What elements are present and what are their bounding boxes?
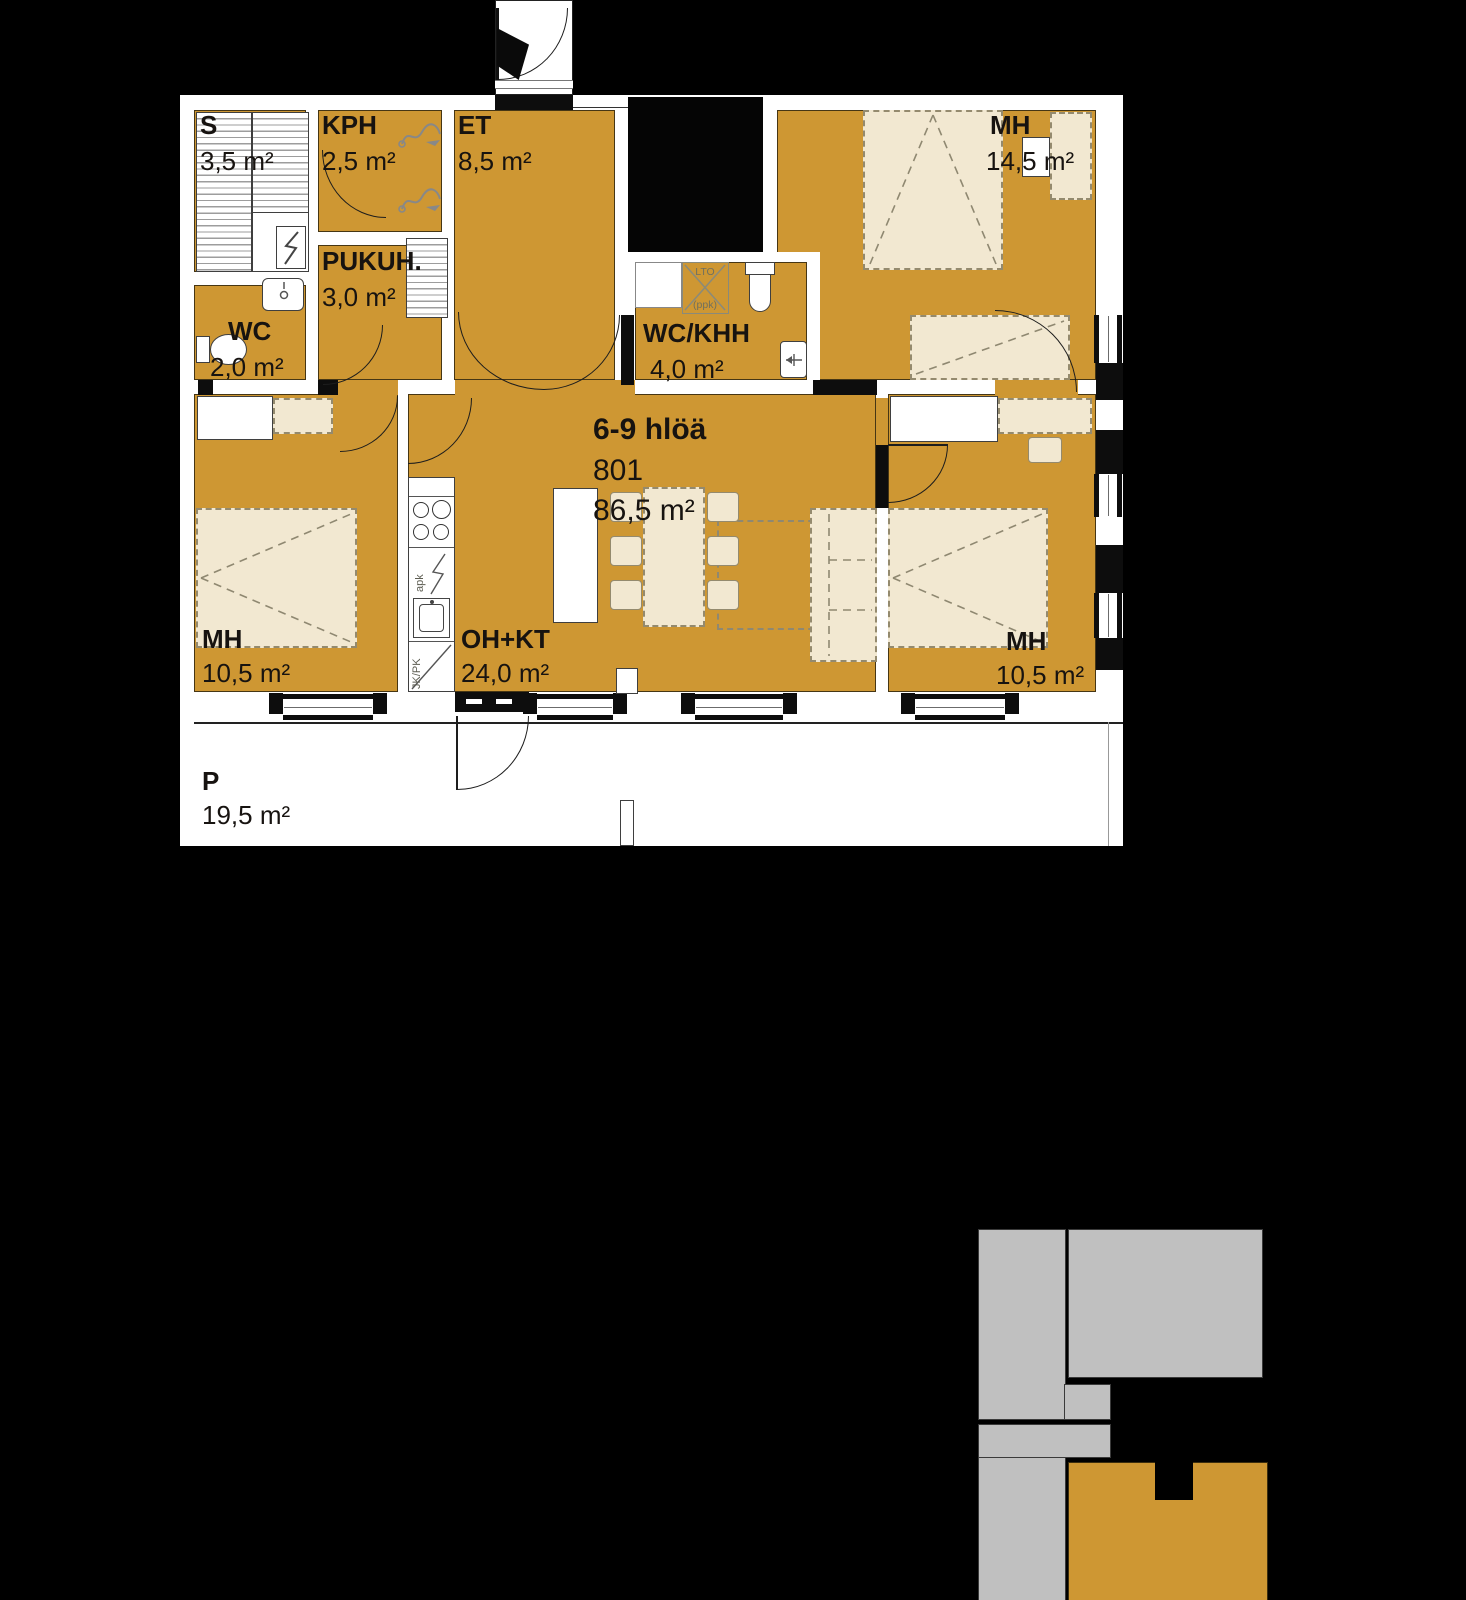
pillar-living	[616, 668, 638, 694]
wall-segment-5	[876, 445, 888, 508]
wall-segment-4	[813, 380, 877, 395]
label-bedroom-1-area: 14,5 m²	[986, 148, 1074, 174]
door-leaf-terrace	[456, 716, 458, 790]
label-bathroom-name: KPH	[322, 112, 377, 138]
label-living-kitchen-area: 24,0 m²	[461, 660, 549, 686]
wardrobe-bedroom-3	[890, 396, 998, 442]
chair-bedroom-3	[1028, 437, 1062, 463]
wall-segment-9	[1096, 638, 1123, 670]
stove-burner-4	[433, 524, 449, 540]
entrance-threshold	[495, 80, 573, 89]
label-living-kitchen-name: OH+KT	[461, 626, 550, 652]
kitchen-sink	[413, 598, 450, 638]
minimap-wing-1	[978, 1229, 1066, 1420]
minimap-wing-4	[978, 1457, 1066, 1600]
dining-chair-3	[610, 580, 642, 610]
label-wc-name: WC	[228, 318, 271, 344]
window-4-jamb-left	[901, 693, 915, 714]
shower-icon-1	[396, 120, 444, 152]
wall-segment-7	[1096, 430, 1123, 474]
window-2-jamb-right	[613, 693, 627, 714]
terrace-door-dash-1	[466, 699, 482, 704]
label-wc-utility-name: WC/KHH	[643, 320, 750, 346]
wall-segment-3	[621, 315, 634, 385]
floor-plan-canvas: LTO (ppk) apk JK/PK	[0, 0, 1466, 1600]
dining-chair-4	[707, 492, 739, 522]
terrace-post	[620, 800, 634, 846]
window-3-jamb-left	[681, 693, 695, 714]
dishwasher-label: apk	[415, 554, 426, 592]
opening-bedroom-3	[876, 398, 888, 445]
shower-icon-2	[396, 185, 444, 217]
label-entry-area: 8,5 m²	[458, 148, 532, 174]
terrace-door-dash-2	[496, 699, 512, 704]
bed-bedroom-1	[863, 110, 1003, 270]
wall-shaft-bottom	[615, 252, 820, 262]
kitchen-island	[553, 488, 598, 623]
label-bedroom-1-name: MH	[990, 112, 1030, 138]
heater-zigzag-icon	[277, 227, 307, 270]
label-unit-number: 801	[593, 456, 643, 486]
terrace	[194, 722, 1123, 846]
label-total-area: 86,5 m²	[593, 496, 695, 526]
wall-segment-1	[198, 380, 213, 395]
sauna-heater	[276, 226, 306, 269]
kitchen-sink-basin	[419, 604, 444, 632]
wall-bedroom-1-left	[807, 252, 820, 380]
fridge-freezer-label: JK/PK	[412, 645, 423, 689]
label-sauna-area: 3,5 m²	[200, 148, 274, 174]
kitchen-counter: apk JK/PK	[408, 477, 455, 692]
minimap-wing-2	[1068, 1229, 1263, 1378]
window-1	[283, 694, 373, 720]
window-4	[915, 694, 1005, 720]
entrance-opening	[495, 95, 573, 110]
dining-chair-2	[610, 536, 642, 566]
lto-label-2: (ppk)	[683, 299, 727, 311]
label-occupancy: 6-9 hlöä	[593, 415, 706, 445]
desk-bedroom-2	[273, 398, 333, 434]
label-bathroom-area: 2,5 m²	[322, 148, 396, 174]
label-bedroom-2-name: MH	[202, 626, 242, 652]
window-2	[537, 694, 613, 720]
utility-toilet-bowl	[749, 274, 771, 312]
stove-burner-1	[413, 502, 429, 518]
label-bedroom-3-area: 10,5 m²	[996, 662, 1084, 688]
window-1-jamb-right	[373, 693, 387, 714]
label-terrace-area: 19,5 m²	[202, 802, 290, 828]
label-terrace-name: P	[202, 768, 219, 794]
label-bedroom-2-area: 10,5 m²	[202, 660, 290, 686]
sofa	[810, 508, 877, 662]
dishwasher-mark-icon	[427, 552, 451, 596]
label-dressing-name: PUKUH.	[322, 248, 422, 274]
label-dressing-area: 3,0 m²	[322, 284, 396, 310]
minimap-wing-3	[978, 1424, 1111, 1458]
kitchen-sink-faucet	[430, 600, 434, 604]
dining-chair-5	[707, 536, 739, 566]
label-bedroom-3-name: MH	[1006, 628, 1046, 654]
stove-burner-3	[413, 524, 429, 540]
window-3	[695, 694, 783, 720]
label-entry-name: ET	[458, 112, 491, 138]
wall-segment-6	[1096, 382, 1123, 400]
minimap-wing-1-foot	[1064, 1384, 1111, 1420]
wall-segment-8	[1096, 545, 1123, 593]
window-3-jamb-right	[783, 693, 797, 714]
wardrobe-bedroom-2	[197, 396, 273, 440]
wall-segment-10	[1096, 363, 1123, 382]
fridge-freezer: JK/PK	[409, 641, 454, 691]
label-sauna-name: S	[200, 112, 217, 138]
door-leaf-bedroom-3	[888, 444, 948, 446]
lto-label-1: LTO	[683, 266, 727, 278]
dining-chair-6	[707, 580, 739, 610]
utility-shaft	[628, 97, 763, 252]
heat-recovery-unit: LTO (ppk)	[682, 262, 729, 314]
utility-cabinet	[635, 262, 682, 308]
utility-basin	[780, 341, 807, 378]
stove	[409, 496, 454, 548]
label-wc-area: 2,0 m²	[210, 354, 284, 380]
window-5	[1094, 315, 1122, 363]
minimap-highlight-notch	[1155, 1462, 1193, 1500]
label-wc-utility-area: 4,0 m²	[650, 356, 724, 382]
wc-sink	[262, 278, 304, 311]
terrace-divider	[1108, 722, 1109, 846]
window-7	[1094, 593, 1122, 638]
window-6	[1094, 474, 1122, 517]
desk-bedroom-3	[998, 398, 1092, 434]
window-4-jamb-right	[1005, 693, 1019, 714]
wc-toilet-cistern	[196, 336, 210, 363]
window-1-jamb-left	[269, 693, 283, 714]
stove-burner-2	[432, 500, 451, 519]
